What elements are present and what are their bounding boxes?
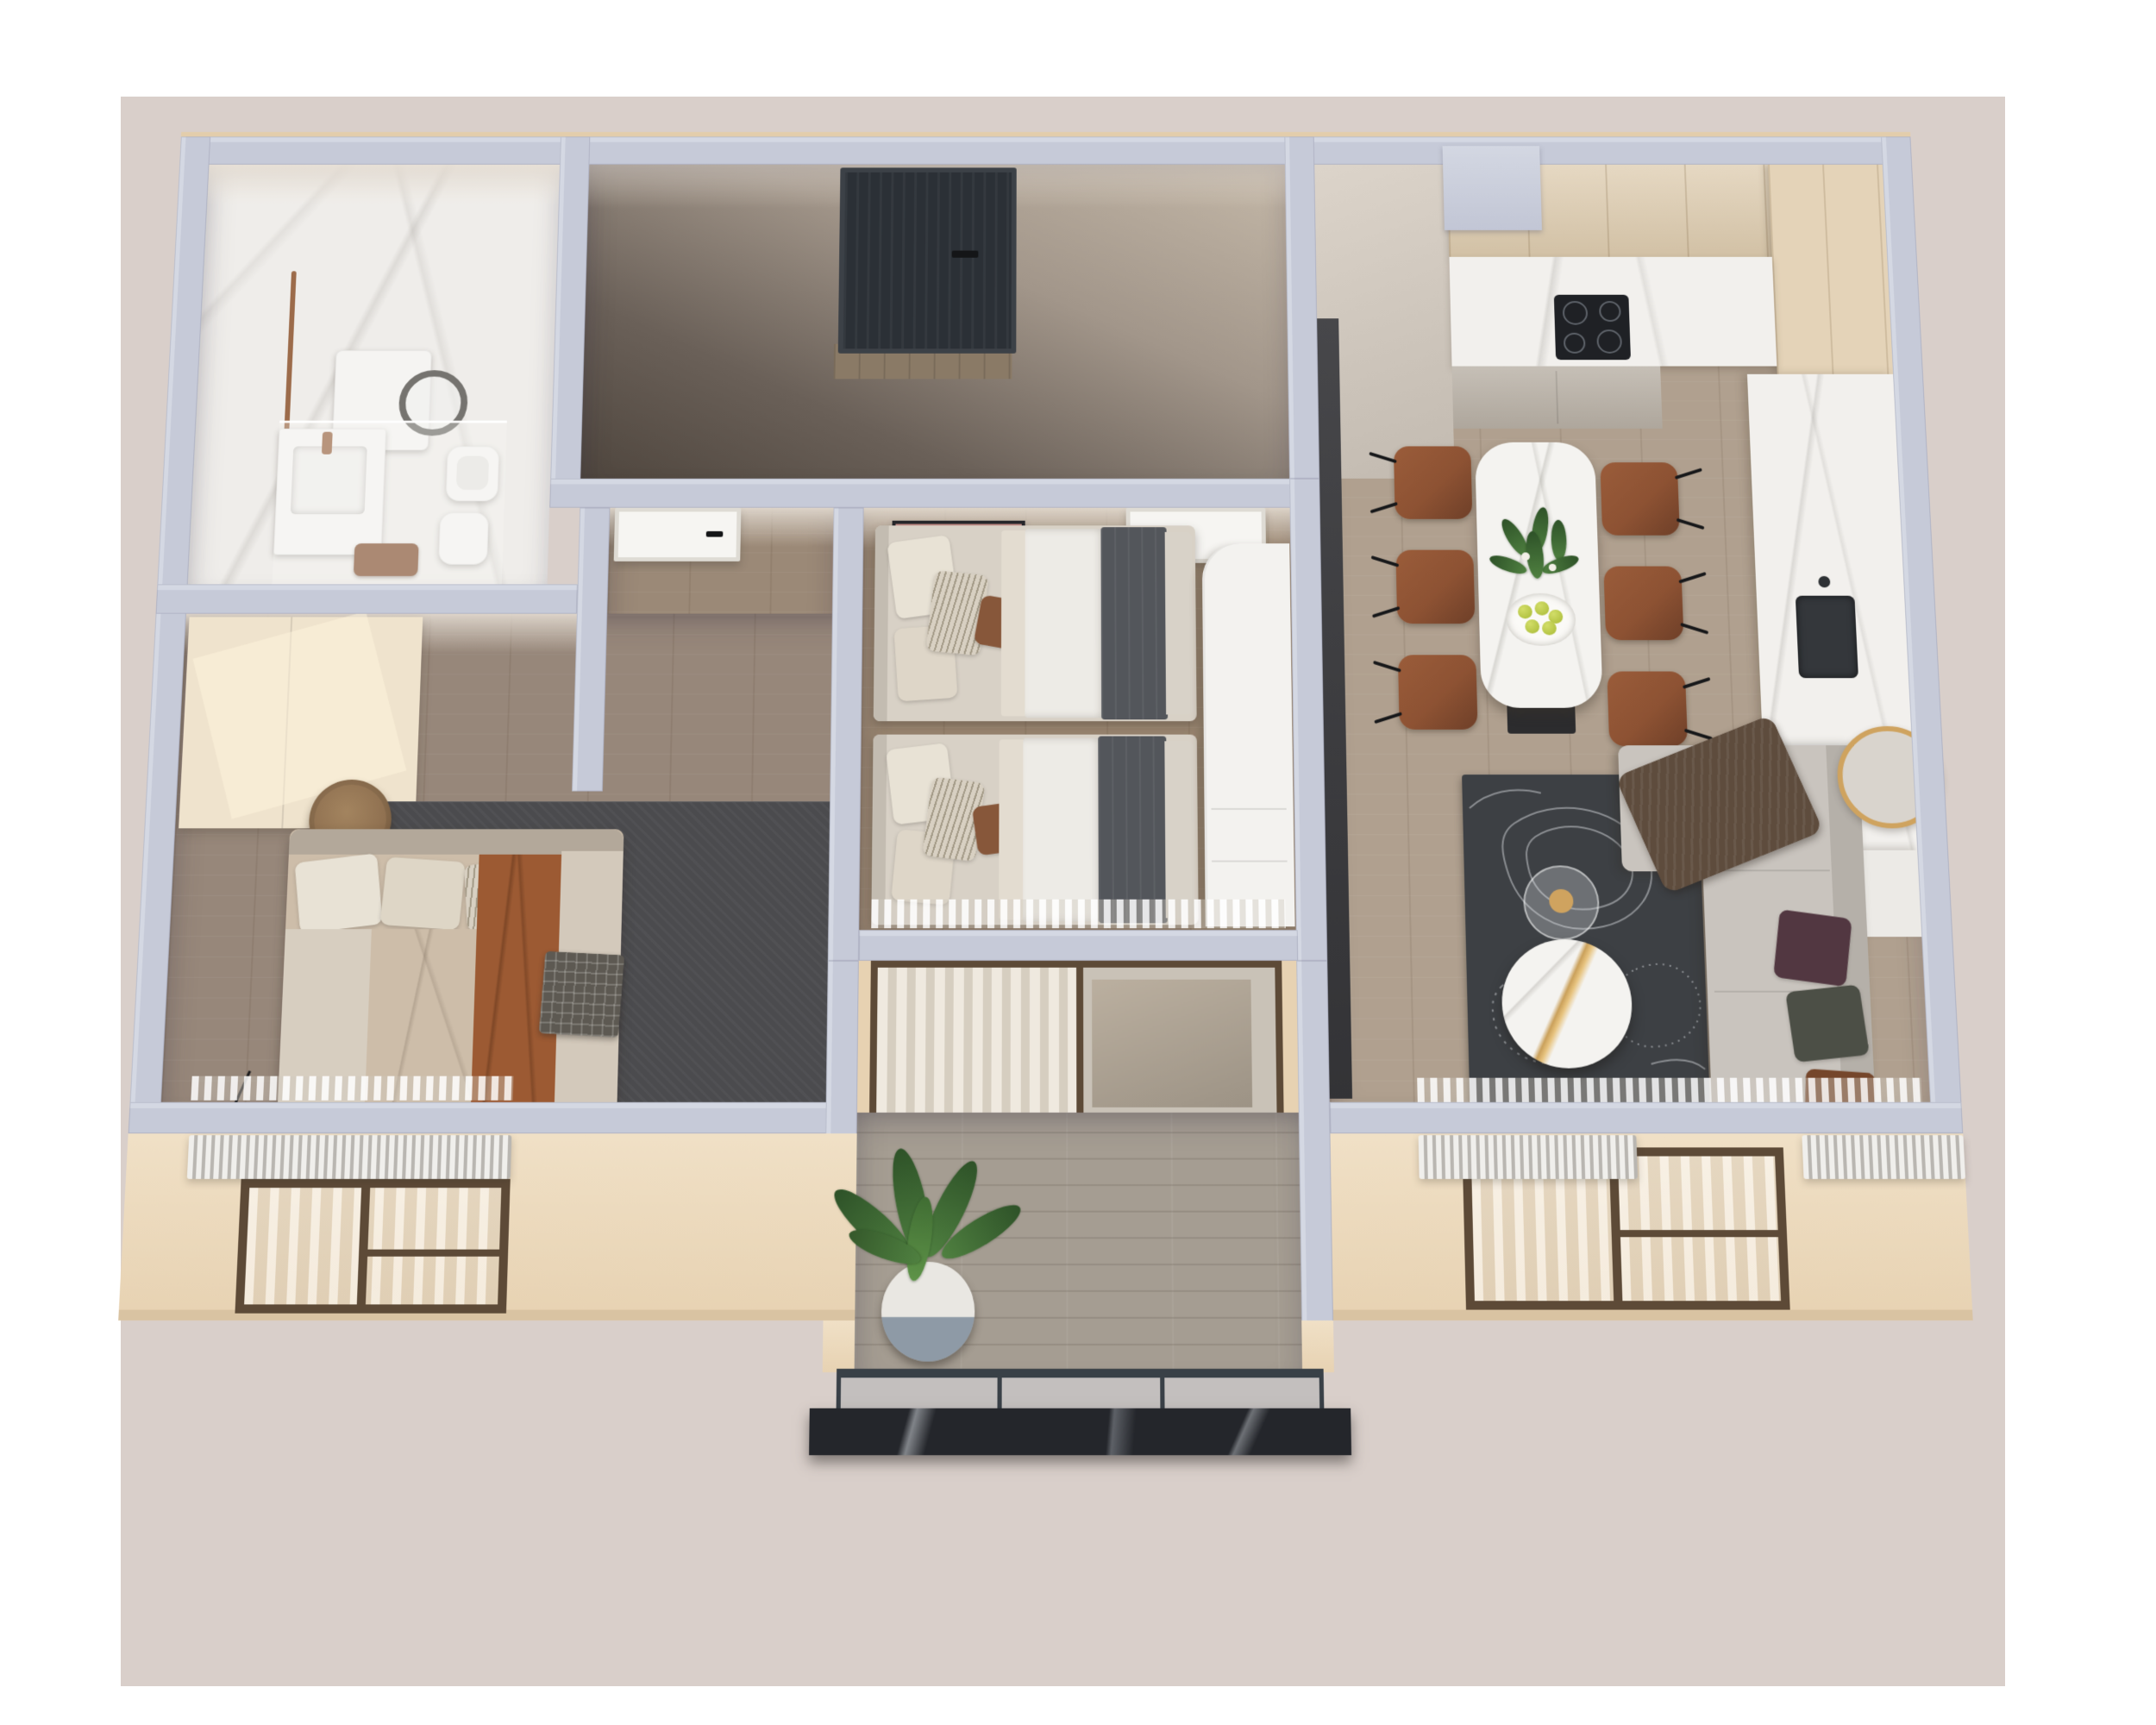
radiator-living-2 xyxy=(1802,1135,1965,1179)
kitchen-soffit xyxy=(1443,146,1542,230)
room-bathroom xyxy=(188,165,560,585)
dining-chair xyxy=(1603,567,1683,641)
facade-balcony-right xyxy=(1301,1320,1334,1372)
kitchen-sink xyxy=(1796,596,1858,678)
balcony-door-curtain xyxy=(876,968,1076,1120)
wall-hall-kitchen xyxy=(1284,136,1319,478)
room-living-kitchen xyxy=(1314,165,1930,1102)
kitchen-counter xyxy=(1449,257,1777,367)
master-wardrobe xyxy=(179,617,423,828)
balcony-sliding-door xyxy=(869,961,1284,1126)
scene-canvas xyxy=(0,0,2156,1725)
radiator-living-1 xyxy=(1419,1135,1638,1179)
hallway-door xyxy=(614,508,742,561)
radiator-bedroom xyxy=(187,1135,512,1179)
kitchen-tall-cabinets xyxy=(1768,165,1893,374)
dining-chair xyxy=(1394,446,1472,518)
sofa-cushion-olive xyxy=(1785,984,1870,1062)
balcony-floor xyxy=(855,1113,1302,1372)
bedroom-curtains xyxy=(191,1076,513,1101)
facade-right-edge xyxy=(1333,1310,1973,1320)
bathroom-wall-face xyxy=(207,165,560,205)
entrance-door xyxy=(838,167,1017,353)
sofa-cushion-maroon xyxy=(1773,909,1852,987)
dining-table-leg xyxy=(1507,704,1576,734)
wall-bathroom-bottom xyxy=(156,584,578,613)
shower-glass-panel xyxy=(272,421,507,595)
dining-table xyxy=(1475,442,1603,708)
living-curtains xyxy=(1417,1078,1922,1102)
kids-wardrobe xyxy=(1202,543,1295,926)
floor-plan xyxy=(0,38,2156,1725)
kitchen-lower-cabinets xyxy=(1452,367,1663,429)
master-bed xyxy=(278,829,624,1101)
room-bedroom-master xyxy=(161,614,862,1102)
kids-bed-lower xyxy=(871,735,1198,925)
kids-curtains xyxy=(871,900,1285,929)
sink-faucet xyxy=(1818,576,1830,587)
plant-pot xyxy=(881,1262,975,1362)
wall-hall-bottom xyxy=(549,479,1319,508)
dining-chair xyxy=(1600,462,1680,536)
wall-top xyxy=(179,136,1912,164)
balcony-door-zone xyxy=(857,961,1299,1113)
wall-corridor-kids xyxy=(828,508,864,961)
kids-bed-upper xyxy=(874,525,1197,721)
fruit-plate xyxy=(1506,593,1576,646)
copper-towel-rail xyxy=(284,271,297,438)
dining-chair xyxy=(1395,550,1475,624)
facade-balcony-left xyxy=(823,1320,856,1372)
entrance-door-handle xyxy=(952,251,979,258)
wall-bottom-left xyxy=(128,1102,857,1133)
induction-cooktop xyxy=(1554,295,1631,360)
hallway-door-handle xyxy=(706,531,724,537)
dining-chair xyxy=(1607,671,1688,746)
dining-chair xyxy=(1398,655,1478,729)
facade-window-bedroom xyxy=(235,1179,510,1314)
room-bedroom-kids xyxy=(859,508,1295,931)
balcony-door-glass xyxy=(1092,980,1252,1107)
wall-kids-bottom xyxy=(859,930,1298,961)
room-entry-hall xyxy=(580,165,1289,479)
wall-bottom-right xyxy=(1330,1102,1963,1133)
balcony-stone-ledge xyxy=(809,1408,1351,1455)
